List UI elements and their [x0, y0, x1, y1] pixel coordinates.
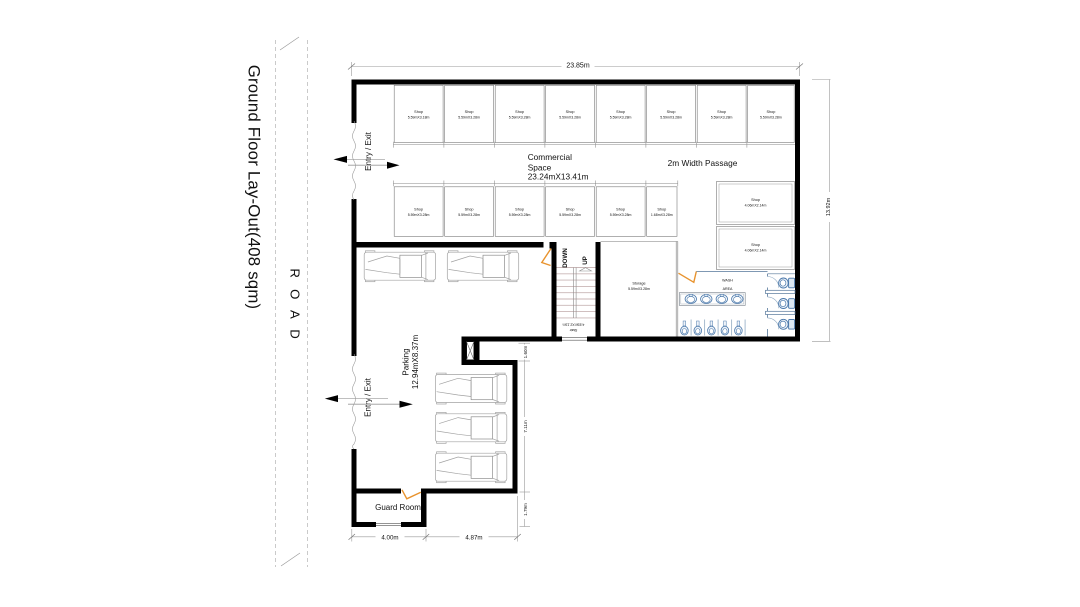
svg-text:Shop: Shop — [657, 208, 666, 212]
svg-text:5.59mX3.28m: 5.59mX3.28m — [408, 213, 430, 217]
svg-text:1.79m: 1.79m — [523, 503, 528, 516]
svg-text:5.59mX3.18m: 5.59mX3.18m — [408, 116, 430, 120]
svg-text:13.92m: 13.92m — [826, 197, 832, 216]
svg-text:Shop: Shop — [751, 243, 760, 247]
svg-text:Ground Floor Lay-Out(408 sqm): Ground Floor Lay-Out(408 sqm) — [245, 65, 264, 310]
svg-text:Shop: Shop — [465, 110, 474, 114]
svg-text:12.94mX8.37m: 12.94mX8.37m — [411, 335, 420, 390]
svg-text:Storage: Storage — [632, 282, 645, 286]
svg-text:DOWN: DOWN — [562, 248, 569, 268]
svg-text:Commercial: Commercial — [528, 152, 572, 162]
svg-text:7.11m: 7.11m — [523, 420, 528, 433]
svg-text:Shop: Shop — [465, 208, 474, 212]
svg-text:5.59mX3.28m: 5.59mX3.28m — [458, 116, 480, 120]
svg-text:2m Width Passage: 2m Width Passage — [668, 158, 738, 168]
svg-text:Entry / Exit: Entry / Exit — [364, 377, 373, 416]
svg-text:5.59mX3.28m: 5.59mX3.28m — [458, 213, 480, 217]
svg-text:R O A D: R O A D — [288, 268, 303, 342]
svg-text:Shop: Shop — [515, 110, 524, 114]
svg-text:5.59mX3.28m: 5.59mX3.28m — [509, 116, 531, 120]
svg-text:5.59mX3.28m: 5.59mX3.28m — [509, 213, 531, 217]
svg-text:AREA: AREA — [723, 287, 733, 291]
svg-text:Shop: Shop — [566, 208, 575, 212]
svg-text:5.59mX3.28m: 5.59mX3.28m — [559, 213, 581, 217]
svg-text:Shop: Shop — [414, 208, 423, 212]
svg-text:5.59mX3.28m: 5.59mX3.28m — [628, 287, 650, 291]
svg-text:Shop: Shop — [667, 110, 676, 114]
svg-text:Shop: Shop — [515, 208, 524, 212]
svg-text:23.85m: 23.85m — [566, 62, 590, 69]
svg-text:5.59mX3.28m: 5.59mX3.28m — [711, 116, 733, 120]
svg-text:4.06mX2.14m: 4.06mX2.14m — [745, 249, 767, 253]
svg-text:5.59mX3.28m: 5.59mX3.28m — [760, 116, 782, 120]
svg-text:5.59mX3.28m: 5.59mX3.28m — [610, 116, 632, 120]
svg-text:Shop: Shop — [766, 110, 775, 114]
svg-text:Shop: Shop — [616, 208, 625, 212]
svg-text:Parking: Parking — [402, 348, 411, 375]
svg-text:5.59mX3.28m: 5.59mX3.28m — [660, 116, 682, 120]
svg-text:1.60m: 1.60m — [523, 345, 528, 358]
svg-text:Shop: Shop — [616, 110, 625, 114]
svg-text:4.83mX2.13m: 4.83mX2.13m — [563, 323, 585, 327]
svg-text:4.00m: 4.00m — [381, 535, 398, 542]
svg-text:5.59mX3.28m: 5.59mX3.28m — [610, 213, 632, 217]
svg-text:1.68mX3.28m: 1.68mX3.28m — [651, 213, 673, 217]
svg-text:Stair: Stair — [569, 328, 578, 332]
svg-text:UP: UP — [582, 256, 589, 265]
svg-text:4.87m: 4.87m — [465, 535, 482, 542]
svg-text:Shop: Shop — [566, 110, 575, 114]
svg-text:5.59mX3.28m: 5.59mX3.28m — [559, 116, 581, 120]
svg-text:WASH: WASH — [722, 279, 733, 283]
svg-text:Shop: Shop — [751, 198, 760, 202]
svg-text:Shop: Shop — [414, 110, 423, 114]
svg-text:4.06mX2.14m: 4.06mX2.14m — [745, 204, 767, 208]
svg-text:23.24mX13.41m: 23.24mX13.41m — [528, 171, 589, 181]
svg-text:Guard Room: Guard Room — [375, 503, 421, 512]
svg-text:Shop: Shop — [717, 110, 726, 114]
